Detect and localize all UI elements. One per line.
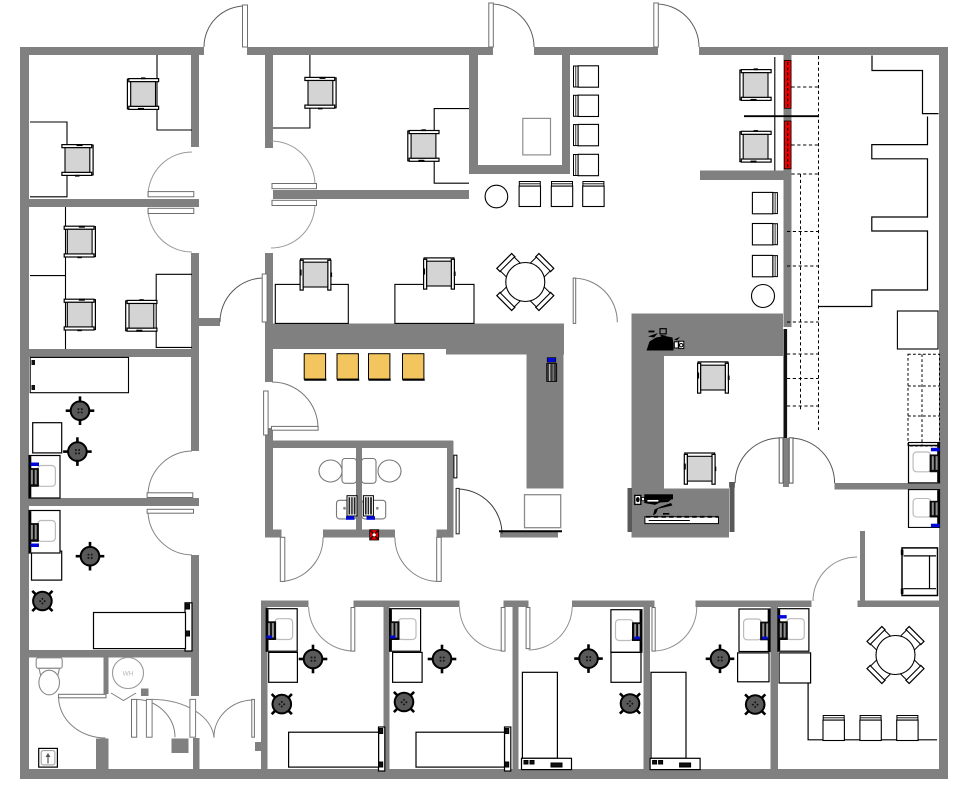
svg-text:WH: WH bbox=[123, 671, 134, 678]
